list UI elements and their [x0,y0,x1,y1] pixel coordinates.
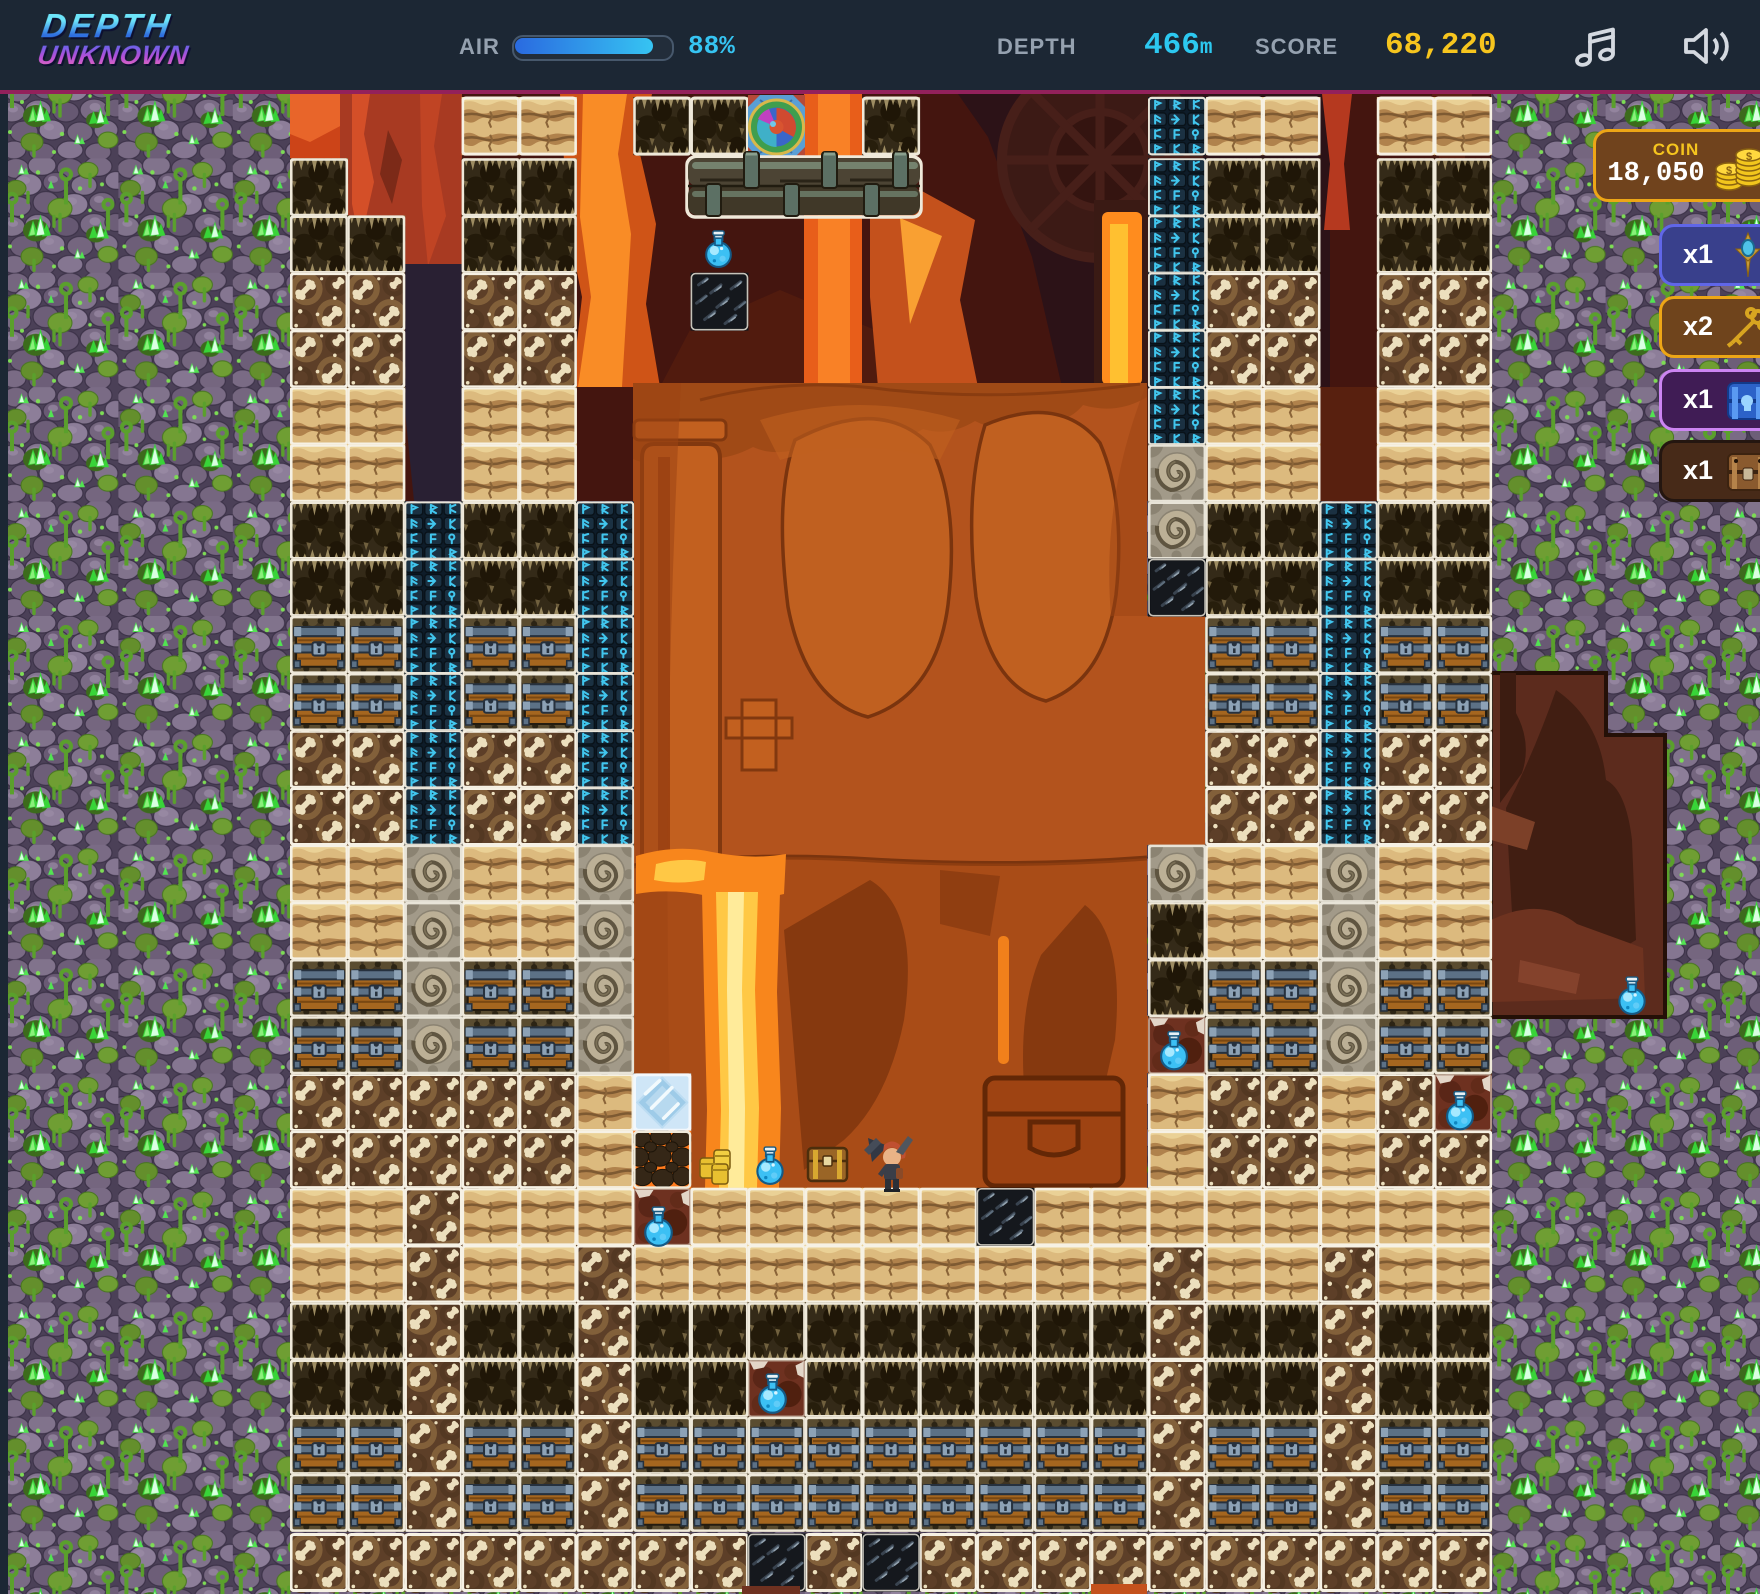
svg-text:$: $ [1746,151,1752,163]
svg-text:$: $ [1726,165,1732,177]
